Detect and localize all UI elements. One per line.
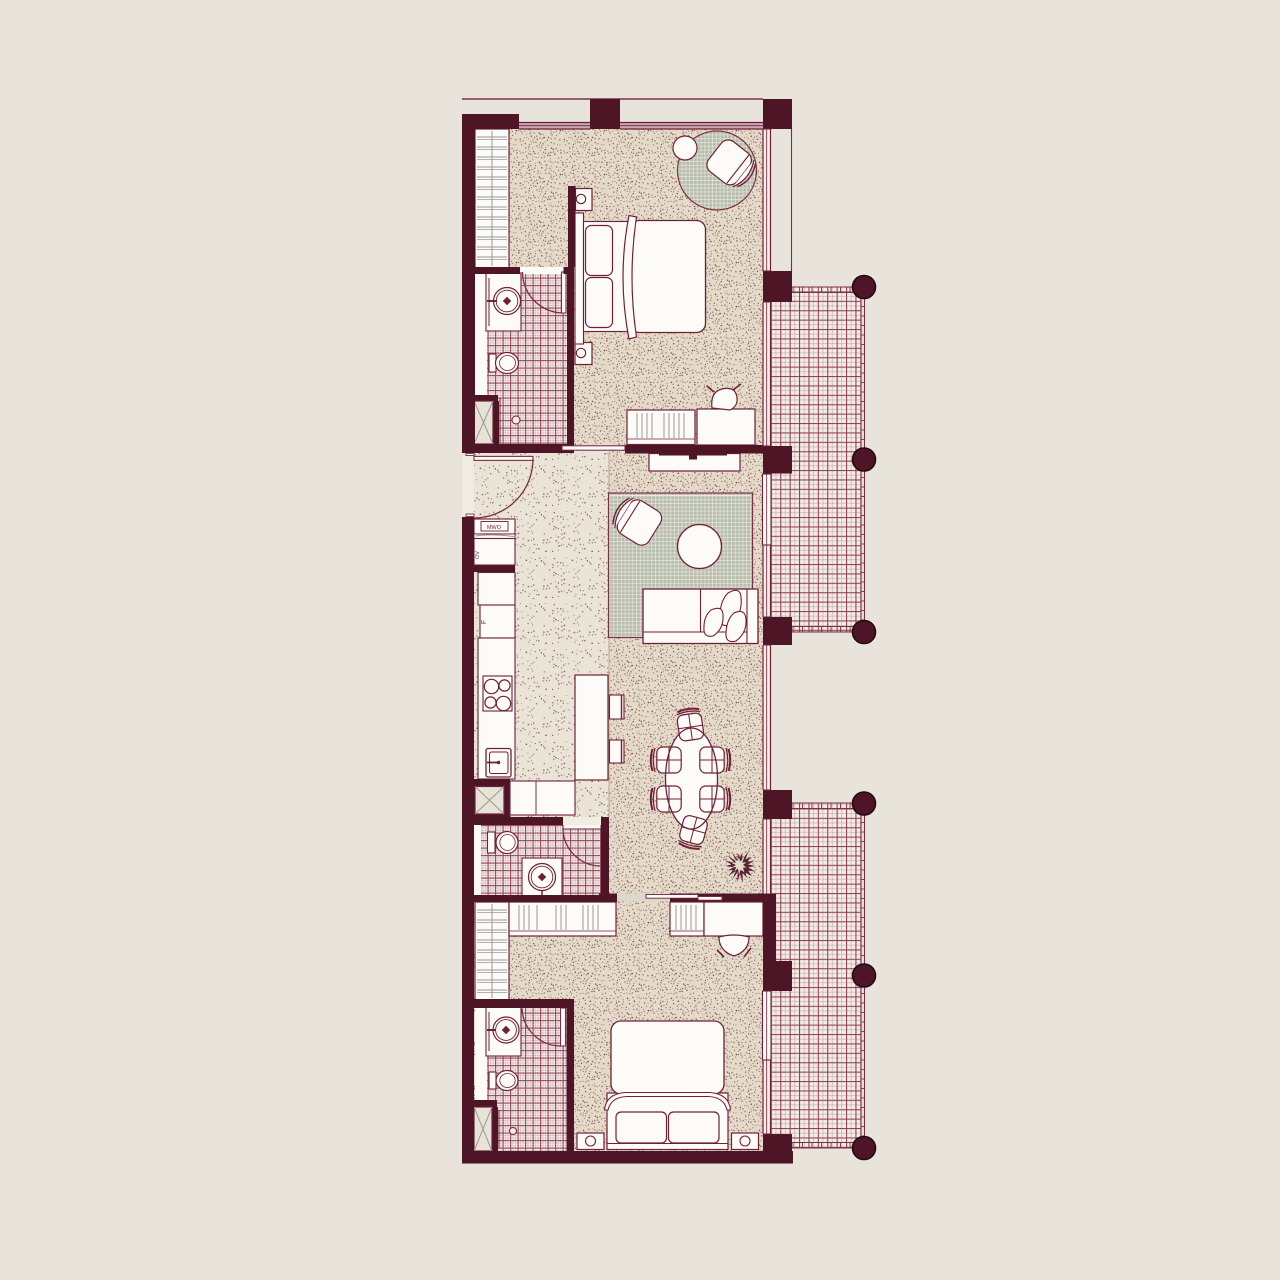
svg-text:OV: OV bbox=[475, 551, 481, 559]
svg-text:MWO: MWO bbox=[487, 525, 502, 531]
svg-text:F: F bbox=[481, 620, 488, 624]
